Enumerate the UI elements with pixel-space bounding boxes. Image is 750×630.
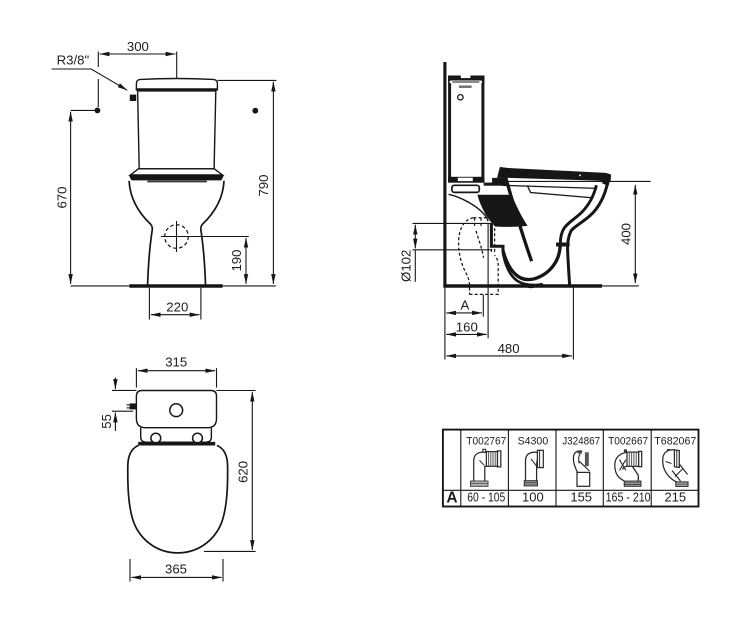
svg-text:100: 100 <box>522 489 544 504</box>
svg-text:S4300: S4300 <box>518 436 549 448</box>
svg-text:T002767: T002767 <box>466 436 506 448</box>
svg-text:480: 480 <box>498 341 520 356</box>
svg-text:A: A <box>461 298 470 313</box>
svg-text:790: 790 <box>256 174 271 196</box>
svg-text:300: 300 <box>127 39 149 54</box>
svg-text:165 - 210: 165 - 210 <box>606 489 651 504</box>
svg-text:60 - 105: 60 - 105 <box>467 489 505 504</box>
svg-text:Ø102: Ø102 <box>398 250 413 282</box>
svg-text:315: 315 <box>165 355 187 370</box>
svg-text:T682067: T682067 <box>654 436 696 448</box>
svg-text:365: 365 <box>165 561 187 576</box>
svg-text:620: 620 <box>235 461 250 483</box>
svg-text:670: 670 <box>54 186 69 208</box>
svg-text:55: 55 <box>99 414 114 429</box>
svg-text:155: 155 <box>570 489 592 504</box>
svg-text:190: 190 <box>229 249 244 271</box>
svg-text:220: 220 <box>166 300 188 315</box>
svg-text:T002667: T002667 <box>608 436 648 448</box>
svg-text:R3/8": R3/8" <box>57 53 90 68</box>
svg-text:215: 215 <box>664 489 686 504</box>
svg-text:160: 160 <box>456 319 478 334</box>
svg-text:A: A <box>446 489 457 506</box>
svg-text:400: 400 <box>619 223 634 245</box>
svg-text:J324867: J324867 <box>562 436 600 448</box>
